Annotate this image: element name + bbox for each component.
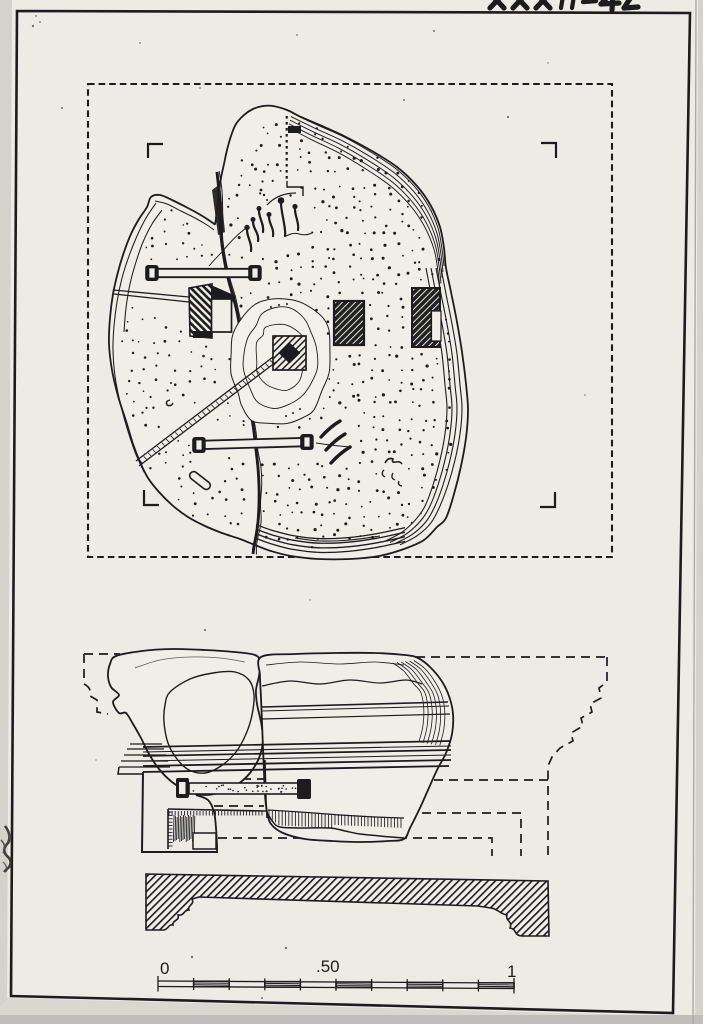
svg-text:1: 1 bbox=[507, 962, 516, 981]
svg-text:0: 0 bbox=[160, 959, 169, 978]
svg-text:.50: .50 bbox=[316, 957, 340, 976]
